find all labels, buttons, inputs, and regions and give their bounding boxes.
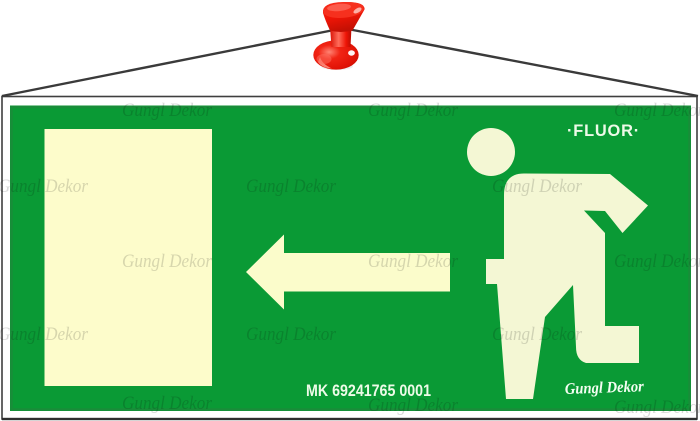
svg-text:Gungl Dekor: Gungl Dekor	[0, 324, 89, 345]
svg-text:·FLUOR·: ·FLUOR·	[567, 122, 640, 140]
svg-text:Gungl Dekor: Gungl Dekor	[492, 176, 583, 197]
svg-text:Gungl Dekor: Gungl Dekor	[614, 251, 700, 272]
svg-text:Gungl Dekor: Gungl Dekor	[246, 324, 337, 345]
svg-text:Gungl Dekor: Gungl Dekor	[122, 100, 213, 121]
svg-text:Gungl Dekor: Gungl Dekor	[368, 395, 459, 416]
svg-text:Gungl Dekor: Gungl Dekor	[492, 324, 583, 345]
svg-text:Gungl Dekor: Gungl Dekor	[565, 378, 645, 398]
svg-text:Gungl Dekor: Gungl Dekor	[614, 100, 700, 121]
svg-text:Gungl Dekor: Gungl Dekor	[368, 251, 459, 272]
svg-text:Gungl Dekor: Gungl Dekor	[368, 100, 459, 121]
svg-text:Gungl Dekor: Gungl Dekor	[122, 251, 213, 272]
svg-text:Gungl Dekor: Gungl Dekor	[0, 176, 89, 197]
svg-text:Gungl Dekor: Gungl Dekor	[614, 397, 700, 418]
svg-text:Gungl Dekor: Gungl Dekor	[246, 176, 337, 197]
svg-text:Gungl Dekor: Gungl Dekor	[122, 393, 213, 414]
